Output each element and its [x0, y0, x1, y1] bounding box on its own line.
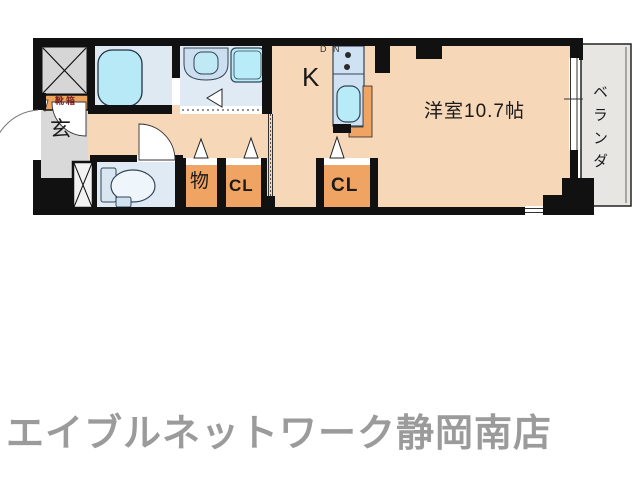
stove-right-label: N — [333, 45, 340, 54]
balcony-label: ベランダ — [592, 84, 607, 176]
shoe-box-label: 靴箱 — [44, 97, 88, 106]
toilet-room — [97, 162, 175, 207]
kitchen-sink-icon — [337, 86, 360, 122]
hall-closet-label: CL — [229, 177, 254, 194]
storage-label: 物 — [190, 172, 209, 191]
entrance-label: 玄 — [50, 119, 71, 140]
kitchen-label: K — [302, 64, 319, 90]
bathtub-icon — [98, 50, 142, 106]
main-room-label: 洋室10.7帖 — [424, 102, 525, 121]
pipe-space-icon — [73, 162, 93, 208]
stove-burner-dot — [345, 52, 351, 58]
bath-door-opening — [172, 78, 180, 105]
shaft-box-icon — [41, 46, 88, 95]
bottom-window — [525, 206, 543, 216]
vanity-sink-icon — [184, 48, 228, 80]
floorplan-page: 玄 靴箱 K D N 洋室10.7帖 物 CL CL ベランダ エイブルネットワ… — [0, 0, 640, 480]
store-name: エイブルネットワーク静岡南店 — [6, 402, 552, 457]
front-door-arc — [0, 110, 38, 160]
room-closet-label: CL — [331, 176, 358, 195]
bath-room — [95, 46, 172, 106]
stove-burner-dot — [344, 64, 350, 70]
stove-left-label: D — [320, 45, 327, 54]
washing-machine-icon — [231, 48, 264, 82]
